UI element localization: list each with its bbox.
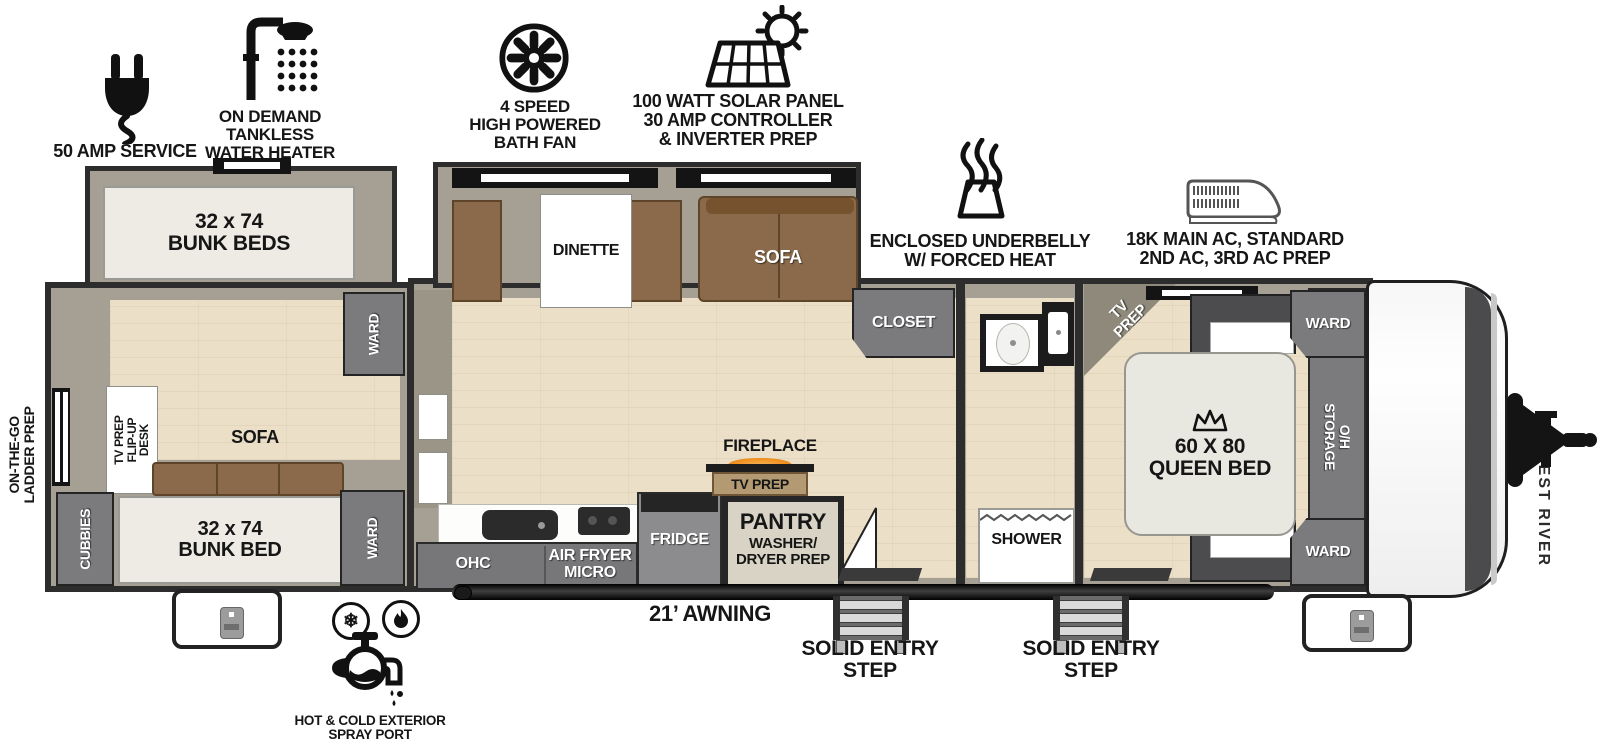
solar-label: 100 WATT SOLAR PANEL 30 AMP CONTROLLER &… — [608, 92, 868, 149]
rear-sofa-label: SOFA — [200, 428, 310, 447]
dinette-bench-left — [452, 200, 502, 302]
dinette-bench-right — [630, 200, 682, 302]
fridge: FRIDGE — [637, 492, 722, 590]
living-left-shelf-top — [418, 394, 448, 440]
rear-tv-desk: TV PREP FLIP-UP DESK — [106, 386, 158, 494]
floorplan-diagram: 50 AMP SERVICE ON DEMAND TANKLESS WATER … — [0, 0, 1600, 753]
forced-heat-icon — [938, 138, 1024, 220]
air-fryer-micro-label: AIR FRYER MICRO — [540, 548, 640, 582]
entry-step-left-label: SOLID ENTRY STEP — [790, 638, 950, 683]
rear-baggage-door — [172, 589, 282, 649]
solar-panel-icon — [700, 5, 810, 91]
bath-wall-right — [1075, 284, 1083, 586]
power-plug-icon — [95, 52, 159, 144]
pantry-sub-label: WASHER/ DRYER PREP — [728, 536, 838, 568]
shower-head-icon — [235, 12, 325, 104]
baggage-door-latch-icon — [220, 607, 244, 639]
crown-icon — [1188, 408, 1232, 434]
front-ward-top-label: WARD — [1306, 316, 1351, 332]
dinette-label: DINETTE — [553, 243, 619, 260]
front-ward-top: WARD — [1290, 290, 1366, 358]
oh-storage-label: O/H STORAGE — [1322, 404, 1351, 471]
spray-port-label: HOT & COLD EXTERIOR SPRAY PORT — [280, 714, 460, 743]
front-baggage-door — [1302, 594, 1412, 652]
pantry-label: PANTRY — [728, 510, 838, 533]
rear-slide-roof-vent-icon — [213, 158, 291, 174]
entry-door-swing — [838, 506, 878, 576]
bath-vanity — [1042, 302, 1074, 366]
rear-ward-top: WARD — [343, 292, 405, 376]
water-heater-label: ON DEMAND TANKLESS WATER HEATER — [190, 108, 350, 162]
queen-bed: 60 X 80 QUEEN BED — [1124, 352, 1296, 536]
ohc-label: OHC — [438, 556, 508, 573]
bath-fan-icon — [498, 22, 570, 94]
underbelly-label: ENCLOSED UNDERBELLY W/ FORCED HEAT — [865, 232, 1095, 270]
front-ward-bottom: WARD — [1290, 518, 1366, 586]
rear-ward-bottom-label: WARD — [365, 508, 380, 569]
fireplace-mantel — [706, 464, 814, 472]
awning-label: 21’ AWNING — [620, 602, 800, 625]
rear-ward-top-label: WARD — [367, 305, 382, 363]
rear-ward-bottom: WARD — [340, 490, 405, 586]
entry-step-left-icon — [833, 596, 909, 640]
slide-window-left — [452, 168, 658, 188]
front-cap: FOREST RIVER — [1366, 280, 1508, 598]
closet-label: CLOSET — [872, 315, 935, 332]
bunk-bed-label: 32 x 74 BUNK BED — [178, 519, 281, 561]
queen-bed-label: 60 X 80 QUEEN BED — [1149, 436, 1271, 481]
shower-label: SHOWER — [980, 532, 1073, 549]
front-ward-bottom-label: WARD — [1306, 544, 1351, 560]
ac-label: 18K MAIN AC, STANDARD 2ND AC, 3RD AC PRE… — [1105, 230, 1365, 268]
living-sofa-label: SOFA — [718, 248, 838, 267]
pantry: PANTRY WASHER/ DRYER PREP — [722, 496, 844, 592]
toilet — [986, 320, 1038, 366]
front-baggage-latch-icon — [1350, 610, 1374, 642]
kitchen-sink — [482, 510, 558, 540]
rear-window — [52, 388, 70, 486]
spray-port-faucet-icon — [322, 630, 418, 706]
fireplace-label: FIREPLACE — [700, 437, 840, 455]
living-left-shelf-bottom — [418, 452, 448, 504]
entry-step-right-label: SOLID ENTRY STEP — [1011, 638, 1171, 683]
living-closet: CLOSET — [852, 288, 955, 358]
bedroom-threshold — [1090, 568, 1172, 581]
kitchen-cooktop — [578, 507, 630, 535]
entry-threshold — [838, 568, 922, 581]
fireplace-tv-prep-label: TV PREP — [714, 477, 806, 492]
rear-cubbies: CUBBIES — [56, 492, 114, 586]
slide-window-right — [676, 168, 856, 188]
cubbies-label: CUBBIES — [78, 509, 93, 570]
hitch-icon — [1505, 385, 1597, 495]
ladder-prep-label: ON-THE-GO LADDER PREP — [7, 395, 37, 515]
entry-step-right-icon — [1053, 596, 1129, 640]
rear-sofa — [152, 462, 344, 496]
dinette-table: DINETTE — [540, 194, 632, 308]
bath-fan-label: 4 SPEED HIGH POWERED BATH FAN — [450, 98, 620, 152]
ac-unit-icon — [1182, 178, 1286, 230]
rear-bunk-bed-mattress: 32 x 74 BUNK BED — [118, 496, 342, 584]
shower-stall: SHOWER — [978, 508, 1075, 584]
fireplace-tv-cabinet: TV PREP — [712, 472, 808, 496]
bed-cabinet-top — [1190, 294, 1296, 354]
bath-wall-left — [956, 284, 965, 586]
bunk-beds-label: 32 x 74 BUNK BEDS — [168, 211, 290, 256]
shower-curtain-icon — [980, 512, 1073, 524]
rear-bunk-beds-mattress: 32 x 74 BUNK BEDS — [103, 186, 355, 280]
rear-tv-desk-label: TV PREP FLIP-UP DESK — [113, 415, 151, 465]
fridge-label: FRIDGE — [639, 532, 720, 549]
